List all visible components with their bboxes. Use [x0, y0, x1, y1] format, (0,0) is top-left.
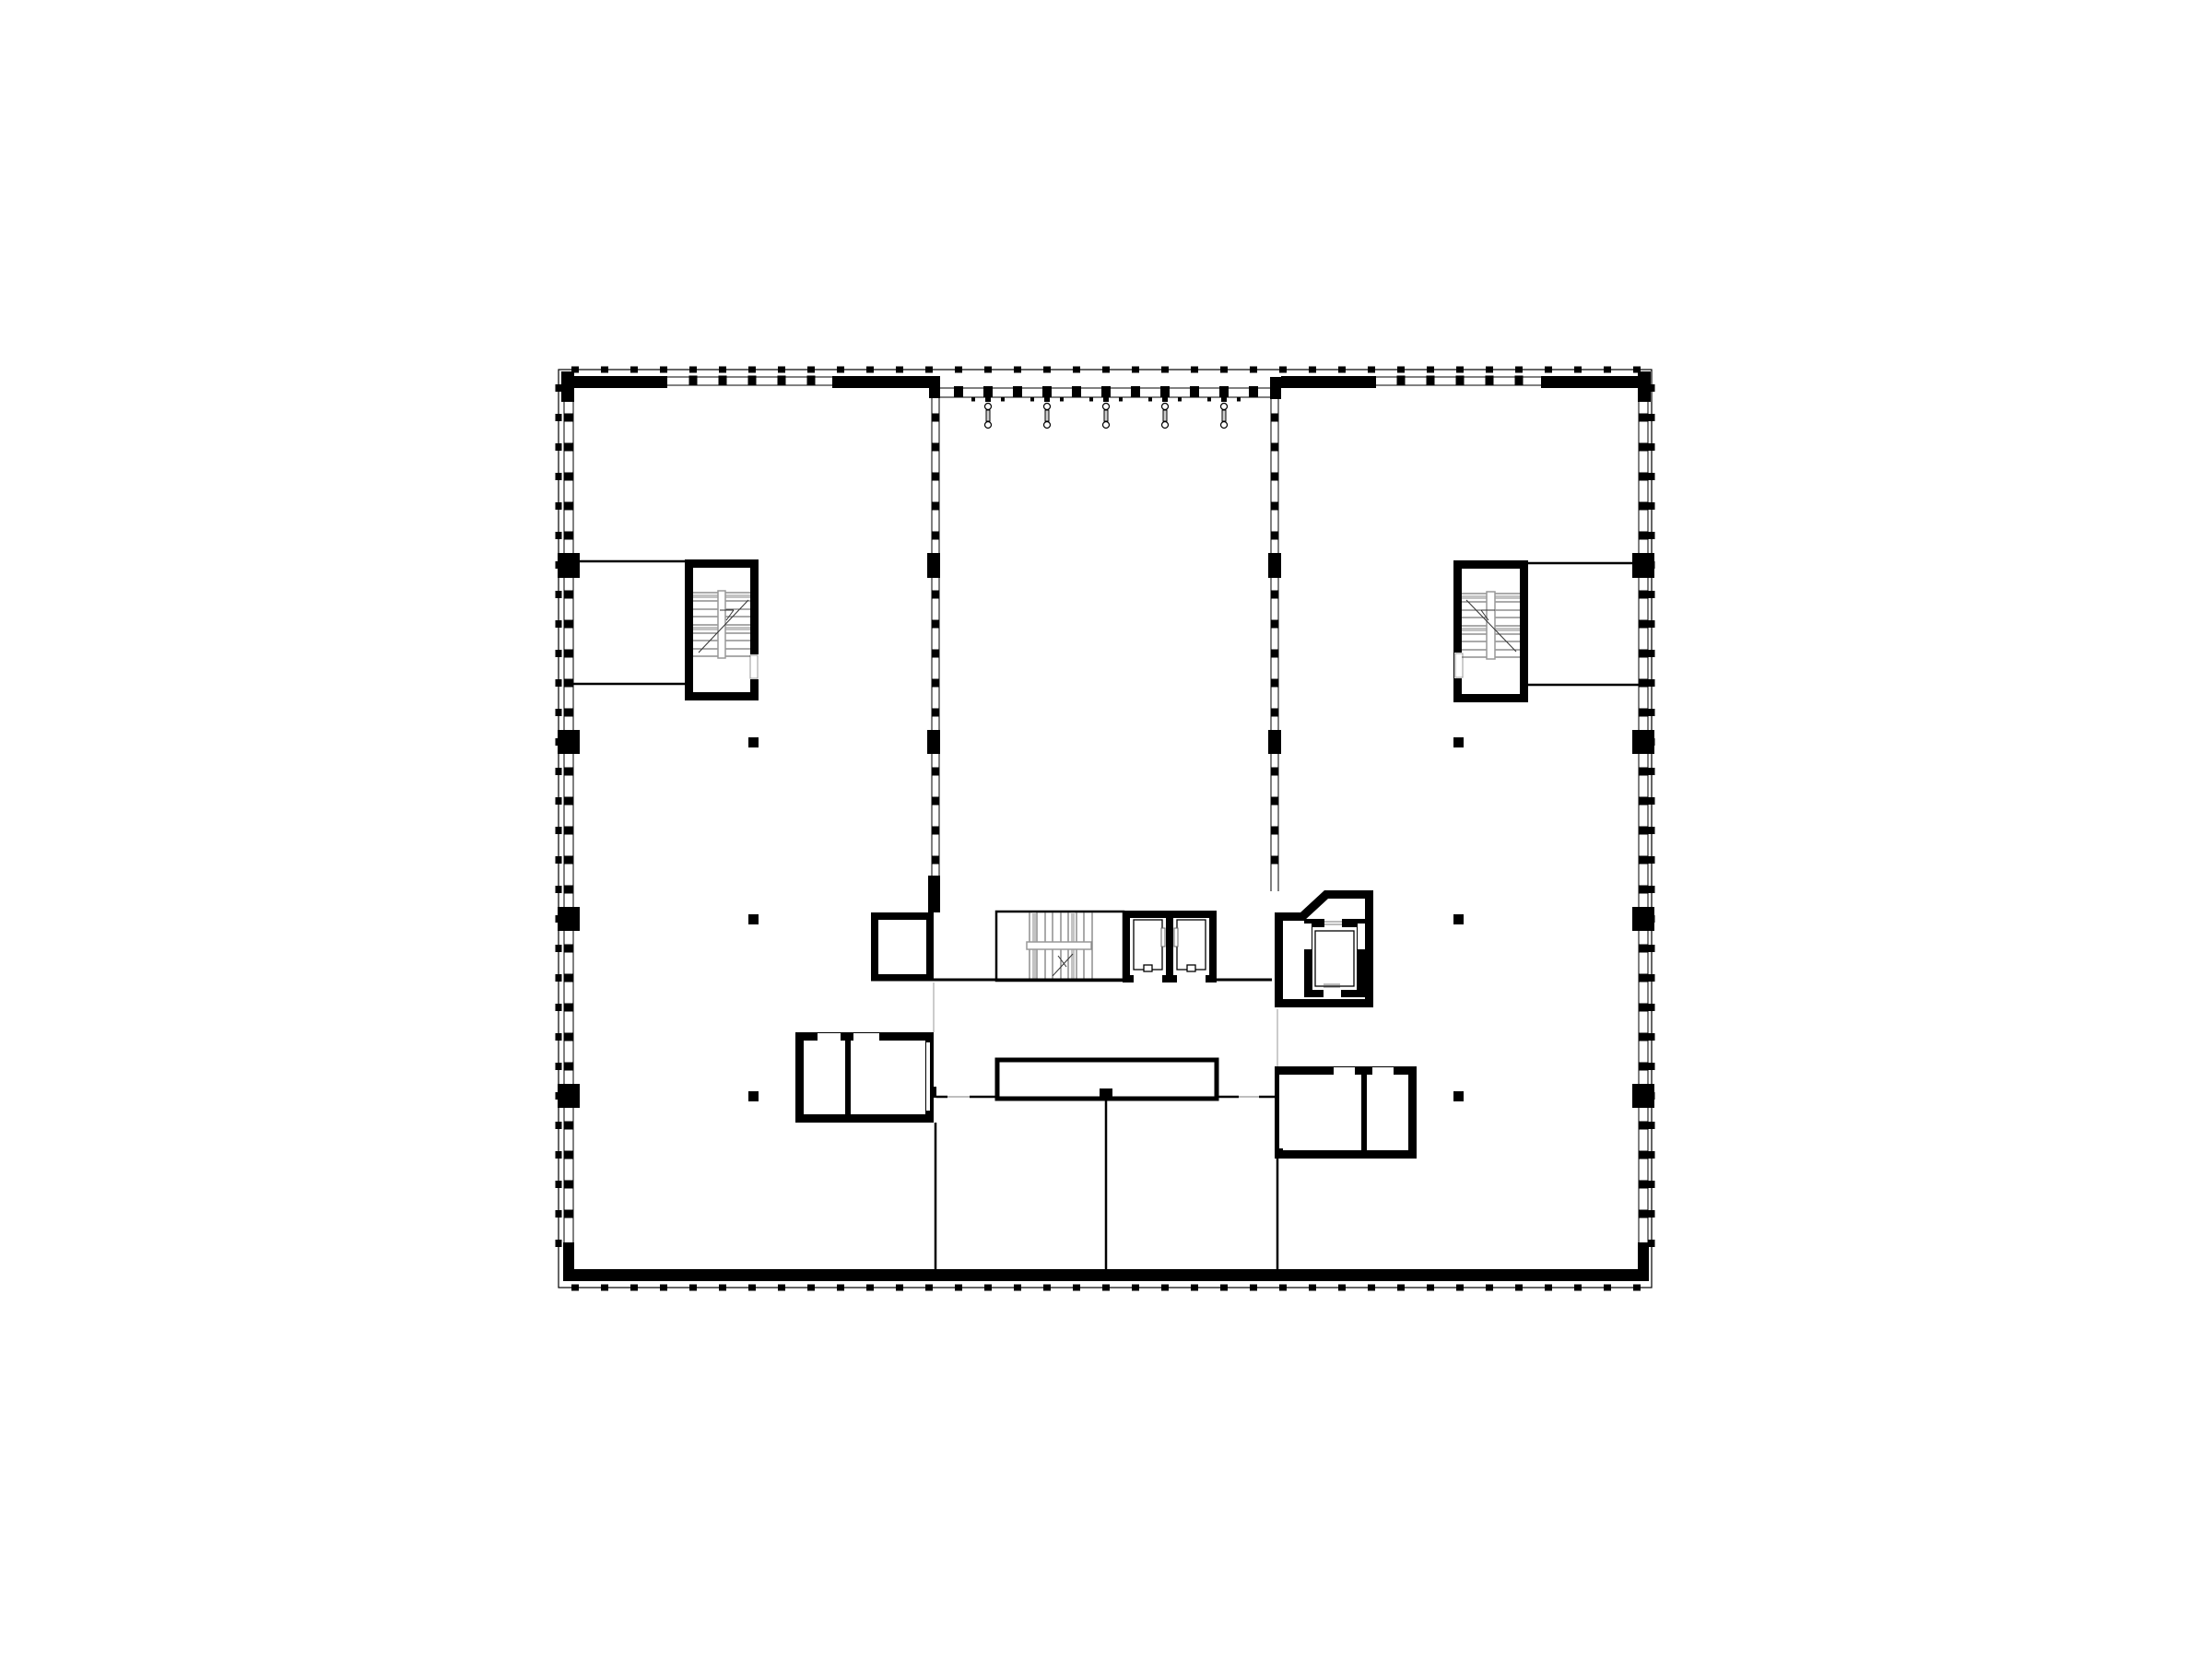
facade-mullion-dashes-top: [660, 367, 667, 373]
atrium-left-wall-column: [927, 730, 940, 754]
facade-mullion-dashes-bottom: [1633, 1285, 1641, 1291]
atrium-left-wall-studs: [932, 768, 940, 776]
atrium-glazing-ticks: [1060, 397, 1064, 402]
atrium-left-wall-studs: [932, 856, 940, 865]
facade-mullion-dashes-left: [556, 974, 562, 982]
right-facade-mullions: [1639, 1033, 1649, 1041]
right-facade-mullions: [1639, 414, 1649, 422]
facade-mullion-dashes-right: [1649, 768, 1655, 775]
right-facade-mullions: [1639, 827, 1649, 835]
facade-mullion-dashes-top: [1456, 367, 1464, 373]
canopy-tie-rod-rod: [1104, 410, 1108, 421]
left-stair-core-door-leaf: [750, 655, 758, 678]
canopy-tie-rod-eye-top: [1162, 404, 1169, 410]
atrium-left-wall-studs: [932, 473, 940, 481]
facade-mullion-dashes-bottom: [1132, 1285, 1139, 1291]
structural-column: [1453, 737, 1464, 747]
atrium-glazing-mullions: [1042, 386, 1052, 397]
left-facade-mullions: [564, 1181, 574, 1189]
freight-shaft-interior: [1312, 927, 1357, 990]
facade-mullion-dashes-top: [1102, 367, 1110, 373]
elevator-car-left-door: [1144, 965, 1152, 971]
left-facade-mullions: [564, 1210, 574, 1218]
facade-mullion-dashes-left: [556, 1240, 562, 1247]
facade-mullion-dashes-left: [556, 1210, 562, 1218]
right-stair-core-door-leaf: [1455, 653, 1463, 677]
facade-mullion-dashes-left: [556, 650, 562, 657]
facade-mullion-dashes-bottom: [984, 1285, 992, 1291]
left-facade-mullions: [564, 768, 574, 776]
top-window-right-mullions: [1486, 376, 1494, 386]
facade-mullion-dashes-bottom: [1486, 1285, 1493, 1291]
facade-mullion-dashes-top: [807, 367, 815, 373]
canopy-tie-rod-anchor: [1103, 396, 1109, 402]
left-meeting-rooms-door-gap: [853, 1033, 879, 1041]
atrium-left-wall-studs: [932, 679, 940, 688]
facade-mullion-dashes-top: [1043, 367, 1051, 373]
facade-mullion-dashes-bottom: [896, 1285, 903, 1291]
facade-mullion-dashes-top: [925, 367, 933, 373]
right-facade-mullions: [1639, 974, 1649, 982]
atrium-glazing-ticks: [971, 397, 975, 402]
canopy-tie-rod-eye-bottom: [1221, 422, 1228, 429]
facade-mullion-dashes-left: [556, 591, 562, 598]
top-wall-right-solid-b: [1541, 376, 1639, 388]
right-facade-column-bump: [1632, 1084, 1654, 1108]
top-window-left-mullions: [807, 376, 816, 386]
facade-mullion-dashes-top: [1250, 367, 1257, 373]
facade-mullion-dashes-right: [1649, 1240, 1655, 1247]
right-facade-mullions: [1639, 709, 1649, 717]
facade-mullion-dashes-bottom: [748, 1285, 756, 1291]
atrium-right-wall-studs: [1271, 856, 1279, 865]
facade-mullion-dashes-bottom: [1250, 1285, 1257, 1291]
facade-mullion-dashes-left: [556, 384, 562, 392]
left-facade-mullions: [564, 502, 574, 511]
atrium-right-wall-studs: [1271, 797, 1279, 806]
atrium-glazing-ticks: [1178, 397, 1182, 402]
right-facade-mullions: [1639, 620, 1649, 629]
atrium-right-wall-studs: [1271, 502, 1279, 511]
facade-mullion-dashes-bottom: [866, 1285, 874, 1291]
canopy-tie-rod-rod: [1163, 410, 1167, 421]
atrium-glazing-ticks: [1001, 397, 1005, 402]
facade-mullion-dashes-top: [1132, 367, 1139, 373]
atrium-right-wall-studs: [1271, 768, 1279, 776]
right-facade-column-bump: [1632, 730, 1654, 754]
elevator-jamb-mark: [1161, 928, 1165, 947]
facade-mullion-dashes-top: [1427, 367, 1434, 373]
top-window-left-mullions: [719, 376, 727, 386]
right-facade-mullions: [1639, 1122, 1649, 1130]
top-wall-left-solid-b: [832, 376, 929, 388]
right-facade-mullions: [1639, 1210, 1649, 1218]
left-facade-column-bump: [558, 730, 580, 754]
left-facade-mullions: [564, 886, 574, 894]
atrium-glazing-ticks: [1237, 397, 1241, 402]
right-facade-mullions: [1639, 856, 1649, 865]
top-wall-right-solid-a: [1281, 376, 1376, 388]
canopy-tie-rod-eye-bottom: [985, 422, 992, 429]
atrium-left-corner-block: [929, 376, 940, 398]
top-window-left-mullions: [778, 376, 786, 386]
facade-mullion-dashes-bottom: [955, 1285, 962, 1291]
left-facade-mullions: [564, 1063, 574, 1071]
canopy-tie-rod-eye-bottom: [1162, 422, 1169, 429]
facade-mullion-dashes-left: [556, 1063, 562, 1070]
top-window-right-mullions: [1397, 376, 1406, 386]
facade-mullion-dashes-left: [556, 414, 562, 421]
atrium-glazing-mullions: [1131, 386, 1140, 397]
structural-column: [1453, 914, 1464, 924]
floor-plan-drawing: [0, 0, 2212, 1659]
facade-mullion-dashes-top: [1191, 367, 1198, 373]
right-facade-mullions: [1639, 945, 1649, 953]
facade-mullion-dashes-bottom: [1397, 1285, 1405, 1291]
facade-mullion-dashes-left: [556, 768, 562, 775]
facade-mullion-dashes-right: [1649, 679, 1655, 687]
left-facade-mullions: [564, 709, 574, 717]
facade-mullion-dashes-bottom: [1574, 1285, 1582, 1291]
facade-mullion-dashes-right: [1649, 414, 1655, 421]
facade-mullion-dashes-left: [556, 827, 562, 834]
atrium-right-wall-studs: [1271, 532, 1279, 540]
freight-shaft-door-slot: [1358, 924, 1365, 949]
atrium-glazing-ticks: [1119, 397, 1123, 402]
structural-column: [748, 737, 759, 747]
facade-mullion-dashes-right: [1649, 827, 1655, 834]
atrium-glazing-mullions: [954, 386, 963, 397]
elevator-door-gap: [1134, 975, 1162, 982]
facade-mullion-dashes-left: [556, 502, 562, 510]
facade-mullion-dashes-top: [689, 367, 697, 373]
facade-mullion-dashes-right: [1649, 473, 1655, 480]
facade-mullion-dashes-right: [1649, 502, 1655, 510]
atrium-right-wall-column: [1268, 730, 1281, 754]
facade-mullion-dashes-top: [1368, 367, 1375, 373]
canopy-tie-rod-anchor: [1044, 396, 1050, 402]
canopy-tie-rod-rod: [1222, 410, 1226, 421]
atrium-left-wall-studs: [932, 827, 940, 835]
facade-mullion-dashes-left: [556, 709, 562, 716]
facade-mullion-dashes-top: [630, 367, 638, 373]
atrium-right-wall-studs: [1271, 473, 1279, 481]
core-stair-center-rail: [1027, 942, 1091, 949]
left-meeting-rooms-door-gap: [818, 1033, 841, 1041]
top-window-right-mullions: [1456, 376, 1465, 386]
atrium-left-wall-studs: [932, 502, 940, 511]
atrium-glazing-ticks: [1089, 397, 1093, 402]
facade-mullion-dashes-left: [556, 1122, 562, 1129]
left-facade-mullions: [564, 650, 574, 658]
facade-mullion-dashes-top: [1220, 367, 1228, 373]
elevator-car-right: [1177, 920, 1206, 970]
facade-mullion-dashes-left: [556, 473, 562, 480]
facade-mullion-dashes-bottom: [630, 1285, 638, 1291]
facade-mullion-dashes-top: [1309, 367, 1316, 373]
atrium-glazing-mullions: [1219, 386, 1229, 397]
right-facade-mullions: [1639, 1004, 1649, 1012]
facade-mullion-dashes-top: [866, 367, 874, 373]
facade-mullion-dashes-bottom: [660, 1285, 667, 1291]
left-facade-mullions: [564, 1122, 574, 1130]
facade-mullion-dashes-right: [1649, 1033, 1655, 1041]
facade-mullion-dashes-left: [556, 797, 562, 805]
facade-mullion-dashes-bottom: [1427, 1285, 1434, 1291]
facade-mullion-dashes-top: [1338, 367, 1346, 373]
right-facade-corner-solid-top: [1638, 371, 1651, 402]
right-facade-mullions: [1639, 443, 1649, 452]
facade-mullion-dashes-top: [1014, 367, 1021, 373]
facade-mullion-dashes-left: [556, 1181, 562, 1188]
facade-mullion-dashes-top: [837, 367, 844, 373]
right-facade-mullions: [1639, 797, 1649, 806]
structural-column: [748, 914, 759, 924]
facade-mullion-dashes-top: [1073, 367, 1080, 373]
right-facade-mullions: [1639, 1151, 1649, 1159]
facade-mullion-dashes-top: [1515, 367, 1523, 373]
left-facade-mullions: [564, 443, 574, 452]
atrium-right-wall-studs: [1271, 443, 1279, 452]
right-facade-mullions: [1639, 886, 1649, 894]
facade-mullion-dashes-bottom: [571, 1285, 579, 1291]
facade-mullion-dashes-right: [1649, 945, 1655, 952]
atrium-left-wall-studs: [932, 414, 940, 422]
top-window-left-mullions: [748, 376, 757, 386]
right-facade-mullions: [1639, 650, 1649, 658]
atrium-glazing-ticks: [1030, 397, 1034, 402]
top-window-right-mullions: [1427, 376, 1435, 386]
atrium-left-wall-studs: [932, 591, 940, 599]
atrium-glazing-ticks: [1148, 397, 1152, 402]
right-meeting-rooms-door-gap: [1372, 1067, 1394, 1075]
left-facade-mullions: [564, 620, 574, 629]
facade-mullion-dashes-bottom: [1014, 1285, 1021, 1291]
facade-mullion-dashes-bottom: [925, 1285, 933, 1291]
canopy-tie-rod-anchor: [1162, 396, 1168, 402]
left-facade-mullions: [564, 679, 574, 688]
structural-column: [748, 1091, 759, 1101]
canopy-tie-rod-eye-bottom: [1044, 422, 1051, 429]
facade-mullion-dashes-top: [719, 367, 726, 373]
facade-mullion-dashes-right: [1649, 591, 1655, 598]
left-facade-mullions: [564, 591, 574, 599]
left-facade-column-bump: [558, 1084, 580, 1108]
atrium-glazing-mullions: [1101, 386, 1111, 397]
facade-mullion-dashes-right: [1649, 886, 1655, 893]
facade-mullion-dashes-top: [896, 367, 903, 373]
left-facade-mullions: [564, 945, 574, 953]
canopy-tie-rod-eye-top: [1103, 404, 1110, 410]
atrium-glazing-mullions: [1072, 386, 1081, 397]
elevator-car-left: [1134, 920, 1162, 970]
facade-mullion-dashes-top: [1161, 367, 1169, 373]
atrium-right-wall-studs: [1271, 679, 1279, 688]
facade-mullion-dashes-right: [1649, 1181, 1655, 1188]
facade-mullion-dashes-bottom: [1191, 1285, 1198, 1291]
facade-mullion-dashes-top: [1397, 367, 1405, 373]
left-facade-mullions: [564, 414, 574, 422]
atrium-left-wall-studs: [932, 650, 940, 658]
left-facade-mullions: [564, 974, 574, 982]
floor-plan-page: [0, 0, 2212, 1659]
right-meeting-rooms-door-gap: [1334, 1067, 1355, 1075]
facade-mullion-dashes-right: [1649, 1063, 1655, 1070]
atrium-glazing-ticks: [1207, 397, 1211, 402]
facade-mullion-dashes-bottom: [1456, 1285, 1464, 1291]
facade-mullion-dashes-left: [556, 1004, 562, 1011]
atrium-right-wall-studs: [1271, 650, 1279, 658]
atrium-glazing-mullions: [1160, 386, 1170, 397]
facade-mullion-dashes-top: [1574, 367, 1582, 373]
atrium-right-wall-column: [1268, 553, 1281, 578]
facade-mullion-dashes-right: [1649, 1004, 1655, 1011]
facade-mullion-dashes-bottom: [601, 1285, 608, 1291]
facade-mullion-dashes-left: [556, 856, 562, 864]
atrium-right-wall-studs: [1271, 414, 1279, 422]
facade-mullion-dashes-right: [1649, 856, 1655, 864]
facade-mullion-dashes-bottom: [837, 1285, 844, 1291]
left-facade-mullions: [564, 1151, 574, 1159]
reception-desk-center-tab: [1100, 1088, 1112, 1099]
canopy-tie-rod-eye-top: [1221, 404, 1228, 410]
facade-mullion-dashes-bottom: [1102, 1285, 1110, 1291]
facade-mullion-dashes-right: [1649, 650, 1655, 657]
facade-mullion-dashes-top: [1604, 367, 1611, 373]
facade-mullion-dashes-right: [1649, 974, 1655, 982]
facade-mullion-dashes-right: [1649, 1210, 1655, 1218]
atrium-right-wall-studs: [1271, 591, 1279, 599]
atrium-glazing-mullions: [1190, 386, 1199, 397]
top-window-left-mullions: [689, 376, 698, 386]
canopy-tie-rod-rod: [1045, 410, 1049, 421]
facade-mullion-dashes-right: [1649, 532, 1655, 539]
structural-column: [1453, 1091, 1464, 1101]
facade-mullion-dashes-bottom: [1338, 1285, 1346, 1291]
facade-mullion-dashes-bottom: [1043, 1285, 1051, 1291]
atrium-right-corner-block: [1270, 377, 1281, 399]
facade-mullion-dashes-bottom: [1604, 1285, 1611, 1291]
atrium-right-wall-studs: [1271, 709, 1279, 717]
canopy-tie-rod-anchor: [1221, 396, 1227, 402]
facade-mullion-dashes-left: [556, 443, 562, 451]
riser-shaft-interior: [878, 920, 926, 974]
right-facade-mullions: [1639, 1181, 1649, 1189]
right-facade-mullions: [1639, 502, 1649, 511]
left-meeting-rooms-partition: [845, 1041, 851, 1114]
facade-mullion-dashes-top: [984, 367, 992, 373]
left-facade-mullions: [564, 1004, 574, 1012]
facade-mullion-dashes-left: [556, 945, 562, 952]
facade-mullion-dashes-bottom: [689, 1285, 697, 1291]
left-facade-mullions: [564, 473, 574, 481]
elevator-car-right-door: [1187, 965, 1195, 971]
left-meeting-rooms-wall-slit: [926, 1042, 930, 1111]
facade-mullion-dashes-bottom: [807, 1285, 815, 1291]
facade-mullion-dashes-right: [1649, 797, 1655, 805]
right-meeting-rooms-partition: [1361, 1075, 1367, 1150]
atrium-glazing-mullions: [1013, 386, 1022, 397]
atrium-glazing-mullions: [983, 386, 993, 397]
canopy-tie-rod-eye-top: [985, 404, 992, 410]
facade-mullion-dashes-left: [556, 620, 562, 628]
canopy-tie-rod-rod: [986, 410, 990, 421]
facade-mullion-dashes-top: [955, 367, 962, 373]
facade-mullion-dashes-top: [601, 367, 608, 373]
facade-mullion-dashes-top: [1545, 367, 1552, 373]
facade-mullion-dashes-left: [556, 1033, 562, 1041]
left-facade-column-bump: [558, 553, 580, 578]
atrium-left-wall-studs: [932, 797, 940, 806]
facade-mullion-dashes-top: [1279, 367, 1287, 373]
facade-mullion-dashes-right: [1649, 1122, 1655, 1129]
facade-mullion-dashes-right: [1649, 443, 1655, 451]
facade-mullion-dashes-top: [778, 367, 785, 373]
facade-mullion-dashes-bottom: [1161, 1285, 1169, 1291]
right-meeting-rooms-interior: [1283, 1075, 1408, 1150]
right-facade-column-bump: [1632, 553, 1654, 578]
canopy-tie-rod-eye-bottom: [1103, 422, 1110, 429]
right-meeting-rooms-wall-slit: [1279, 1075, 1283, 1148]
facade-mullion-dashes-bottom: [1220, 1285, 1228, 1291]
left-facade-mullions: [564, 797, 574, 806]
left-stair-center-rail: [718, 591, 725, 658]
elevator-jamb-mark: [1174, 928, 1178, 947]
atrium-right-wall-studs: [1271, 620, 1279, 629]
left-facade-mullions: [564, 856, 574, 865]
right-facade-mullions: [1639, 1063, 1649, 1071]
atrium-left-wall-studs: [932, 532, 940, 540]
facade-mullion-dashes-left: [556, 886, 562, 893]
left-meeting-rooms-interior: [804, 1041, 925, 1114]
facade-mullion-dashes-bottom: [719, 1285, 726, 1291]
top-window-right-mullions: [1515, 376, 1524, 386]
canopy-tie-rod-anchor: [985, 396, 991, 402]
facade-mullion-dashes-top: [1486, 367, 1493, 373]
facade-mullion-dashes-left: [556, 1151, 562, 1159]
canopy-tie-rod-eye-top: [1044, 404, 1051, 410]
freight-shaft-door-slot: [1324, 990, 1341, 997]
right-facade-mullions: [1639, 768, 1649, 776]
left-facade-mullions: [564, 532, 574, 540]
bottom-solid-wall: [563, 1269, 1649, 1281]
left-facade-mullions: [564, 1033, 574, 1041]
facade-mullion-dashes-bottom: [1368, 1285, 1375, 1291]
right-facade-column-bump: [1632, 907, 1654, 931]
facade-mullion-dashes-bottom: [1309, 1285, 1316, 1291]
facade-mullion-dashes-left: [556, 679, 562, 687]
facade-mullion-dashes-bottom: [1545, 1285, 1552, 1291]
facade-mullion-dashes-right: [1649, 620, 1655, 628]
facade-mullion-dashes-bottom: [1073, 1285, 1080, 1291]
facade-mullion-dashes-right: [1649, 709, 1655, 716]
facade-mullion-dashes-right: [1649, 1151, 1655, 1159]
top-wall-left-solid-a: [563, 376, 667, 388]
atrium-left-wall-column: [927, 553, 940, 578]
freight-shaft-door-slot: [1304, 924, 1312, 949]
atrium-glazing-mullions: [1249, 386, 1258, 397]
elevator-door-gap: [1177, 975, 1206, 982]
facade-mullion-dashes-bottom: [1515, 1285, 1523, 1291]
atrium-left-wall-studs: [932, 620, 940, 629]
atrium-right-wall-studs: [1271, 827, 1279, 835]
atrium-left-wall-studs: [932, 443, 940, 452]
atrium-left-wall-column: [928, 876, 940, 912]
facade-mullion-dashes-bottom: [1279, 1285, 1287, 1291]
freight-shaft-door-slot: [1324, 919, 1342, 927]
left-facade-mullions: [564, 827, 574, 835]
atrium-left-wall-studs: [932, 709, 940, 717]
